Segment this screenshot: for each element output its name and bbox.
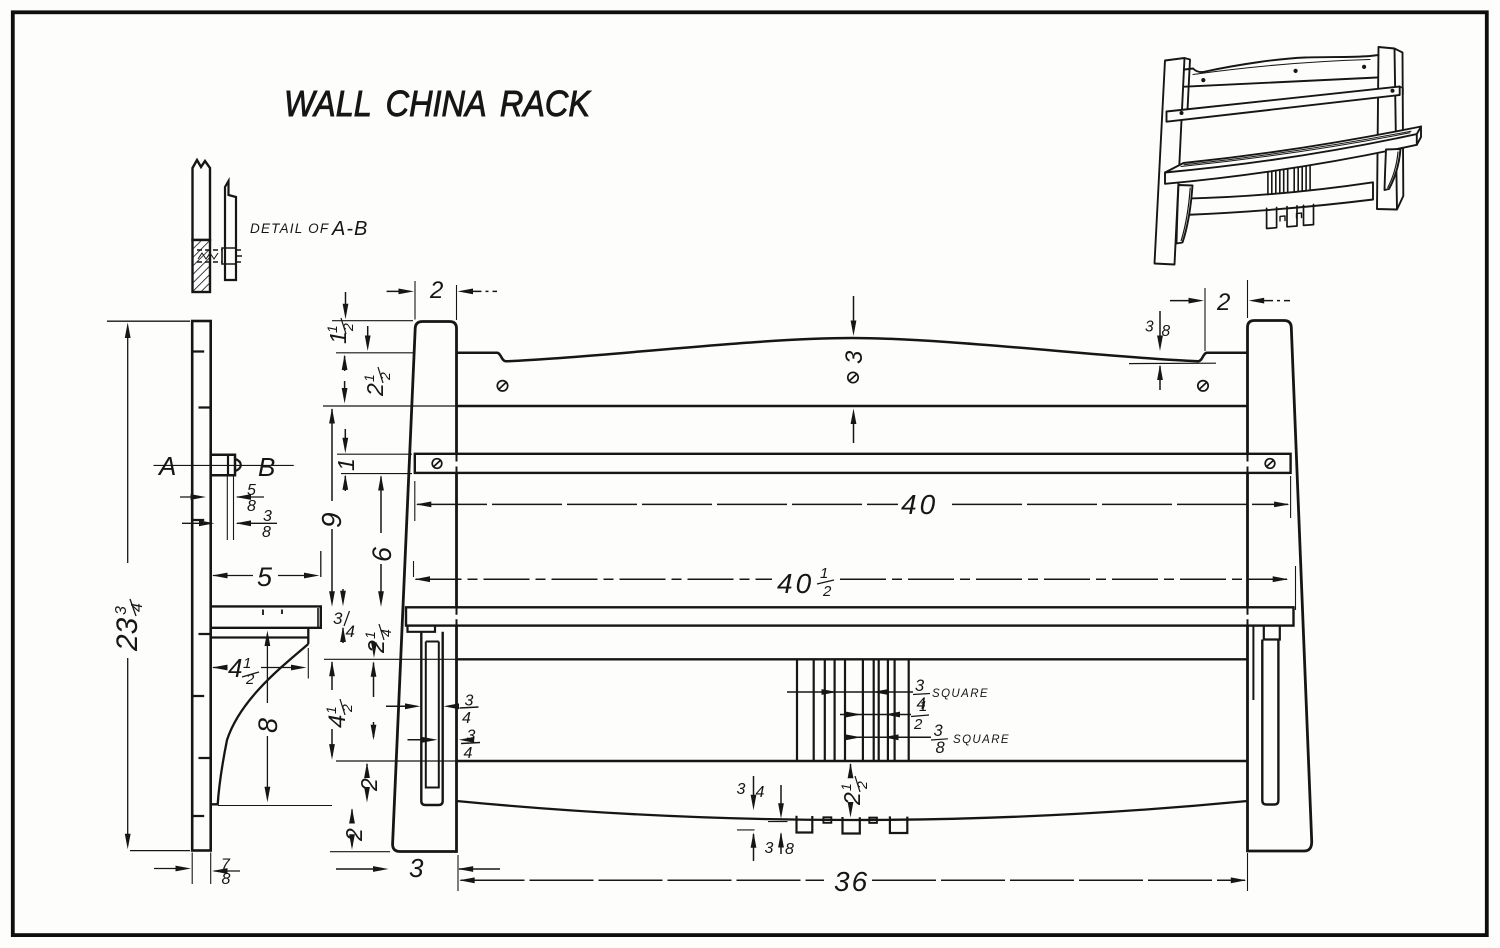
svg-text:1: 1 — [361, 374, 377, 382]
svg-text:8: 8 — [1162, 323, 1171, 340]
svg-text:8: 8 — [936, 739, 946, 757]
svg-text:40: 40 — [901, 489, 938, 520]
svg-text:3: 3 — [915, 677, 925, 695]
svg-text:40: 40 — [777, 568, 814, 599]
svg-text:1: 1 — [919, 698, 927, 715]
svg-text:4: 4 — [228, 653, 242, 683]
svg-text:4: 4 — [464, 745, 473, 762]
svg-text:1: 1 — [324, 325, 340, 333]
svg-text:3: 3 — [263, 508, 272, 525]
svg-text:2: 2 — [429, 277, 443, 304]
svg-text:3: 3 — [934, 722, 944, 740]
svg-text:SQUARE: SQUARE — [932, 688, 989, 700]
svg-text:3: 3 — [765, 840, 774, 857]
svg-text:2: 2 — [913, 716, 923, 733]
svg-text:4: 4 — [756, 784, 765, 801]
svg-text:3: 3 — [737, 781, 746, 798]
svg-text:1: 1 — [838, 783, 854, 791]
svg-text:8: 8 — [222, 871, 231, 888]
svg-text:3: 3 — [333, 609, 343, 628]
svg-text:B: B — [258, 452, 275, 482]
svg-text:1: 1 — [323, 706, 339, 714]
svg-text:1: 1 — [333, 458, 359, 471]
svg-text:8: 8 — [247, 498, 256, 515]
svg-text:3: 3 — [1145, 319, 1154, 336]
svg-text:3: 3 — [841, 350, 868, 364]
svg-text:4: 4 — [462, 710, 471, 727]
svg-text:1: 1 — [362, 631, 378, 639]
svg-text:8: 8 — [262, 524, 271, 541]
svg-text:2: 2 — [1216, 289, 1230, 316]
svg-text:1: 1 — [820, 565, 828, 582]
svg-text:8: 8 — [253, 718, 283, 733]
svg-text:A: A — [157, 451, 176, 481]
svg-text:A-B: A-B — [331, 218, 368, 240]
svg-text:6: 6 — [367, 546, 397, 562]
svg-text:5: 5 — [247, 482, 256, 499]
svg-text:23: 23 — [111, 617, 144, 652]
svg-text:SQUARE: SQUARE — [953, 734, 1010, 746]
svg-text:2: 2 — [822, 583, 832, 600]
svg-text:4: 4 — [324, 715, 351, 728]
svg-text:8: 8 — [785, 841, 794, 858]
svg-text:9: 9 — [316, 512, 347, 528]
svg-text:3: 3 — [465, 693, 474, 710]
svg-text:36: 36 — [834, 866, 869, 897]
svg-text:1: 1 — [243, 655, 251, 672]
svg-text:DETAIL OF: DETAIL OF — [250, 221, 329, 236]
svg-text:3: 3 — [409, 853, 424, 883]
svg-text:WALL CHINA RACK: WALL CHINA RACK — [284, 83, 592, 124]
svg-text:3: 3 — [467, 728, 476, 745]
svg-text:2: 2 — [362, 383, 388, 397]
svg-text:4: 4 — [346, 622, 355, 641]
svg-text:3: 3 — [113, 606, 130, 615]
svg-text:5: 5 — [257, 562, 273, 592]
